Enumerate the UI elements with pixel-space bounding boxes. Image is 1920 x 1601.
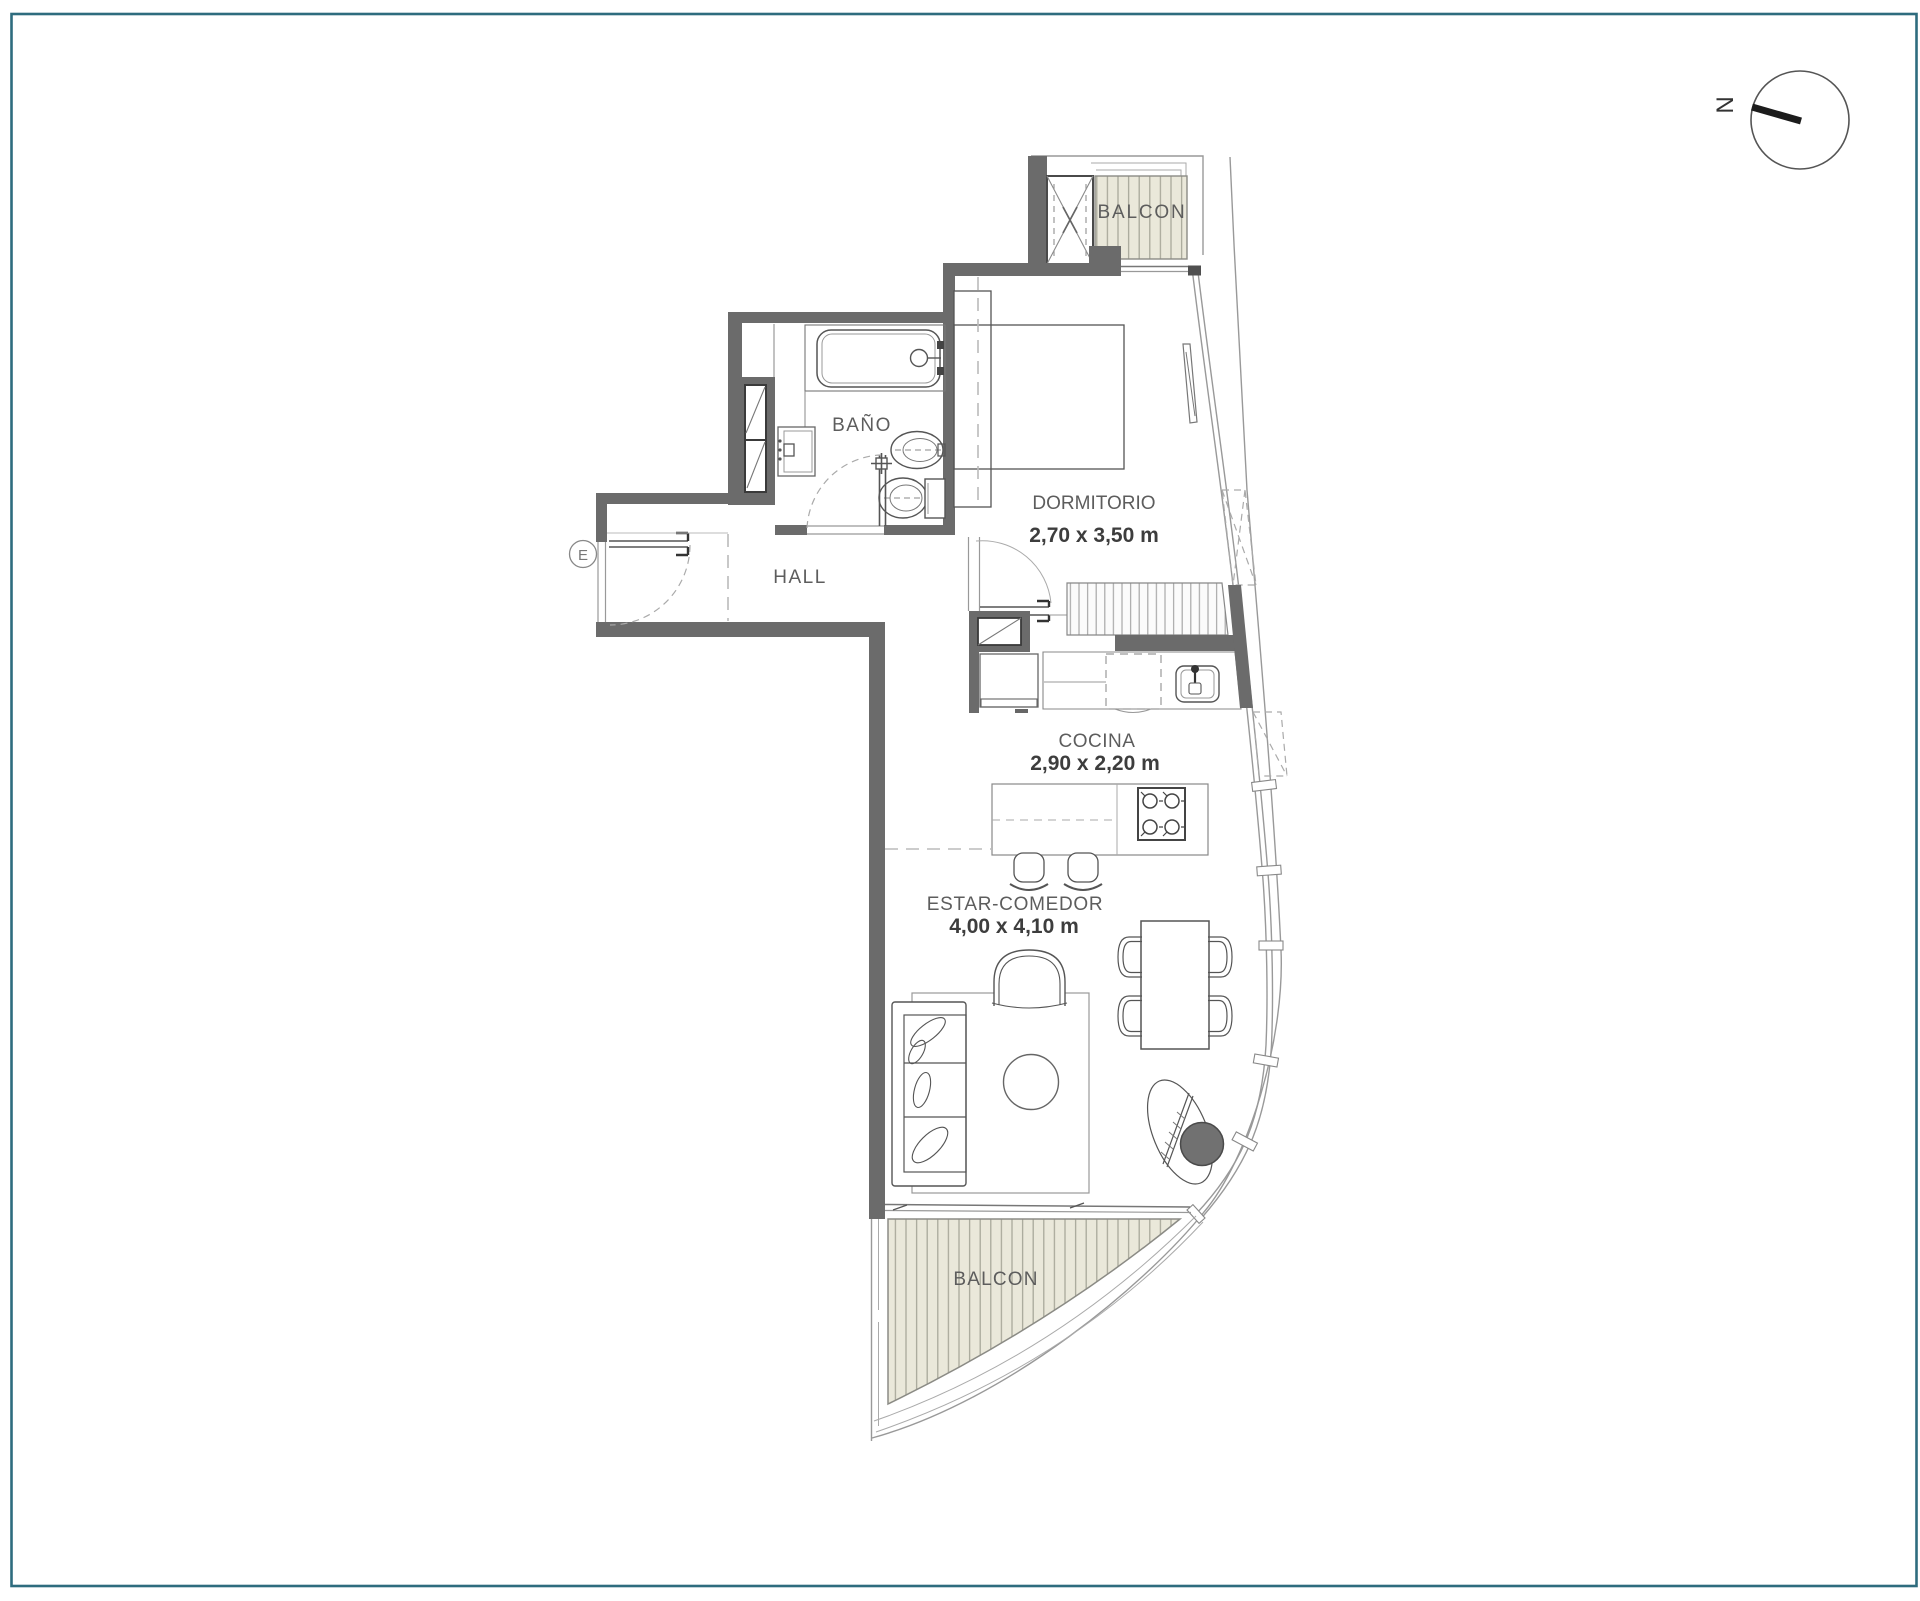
svg-text:COCINA: COCINA	[1059, 731, 1136, 752]
svg-text:ESTAR-COMEDOR: ESTAR-COMEDOR	[927, 894, 1104, 915]
svg-text:N: N	[1712, 96, 1739, 113]
svg-text:2,70 x 3,50 m: 2,70 x 3,50 m	[1029, 524, 1159, 547]
svg-text:DORMITORIO: DORMITORIO	[1032, 493, 1155, 514]
svg-text:BAÑO: BAÑO	[832, 414, 892, 436]
svg-text:4,00 x 4,10 m: 4,00 x 4,10 m	[949, 915, 1079, 938]
svg-text:BALCON: BALCON	[953, 1269, 1038, 1290]
svg-text:HALL: HALL	[773, 567, 827, 588]
svg-text:2,90 x 2,20 m: 2,90 x 2,20 m	[1030, 752, 1160, 775]
svg-text:E: E	[578, 547, 588, 564]
svg-text:BALCON: BALCON	[1098, 202, 1187, 223]
